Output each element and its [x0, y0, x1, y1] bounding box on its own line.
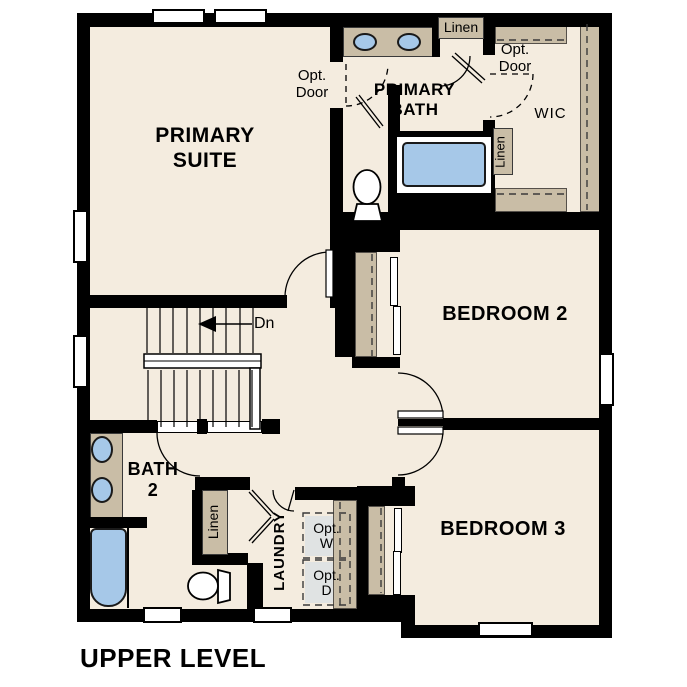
room-label-primary-bath: PRIMARY BATH — [352, 80, 477, 120]
hall-opening — [207, 421, 262, 433]
bath2-tub — [90, 528, 127, 607]
label-opt-washer: Opt. W — [303, 513, 350, 558]
wall-primary-suite-south — [90, 295, 287, 308]
wic-shelf-bottom — [495, 188, 567, 212]
opt-door-wic-line1: Opt. — [492, 41, 538, 58]
wall-closet3-south — [357, 595, 415, 622]
wall-ext-left — [77, 13, 90, 622]
opt-dryer-line2: D — [321, 583, 331, 598]
opt-dryer-line1: Opt. — [313, 568, 339, 583]
label-opt-door-wic: Opt. Door — [492, 41, 538, 76]
wall-closet2-south — [352, 357, 400, 368]
opt-door-wic-line2: Door — [492, 58, 538, 75]
page-title: UPPER LEVEL — [80, 643, 266, 674]
wall-bath2-north — [83, 420, 157, 433]
label-opt-door-primary: Opt. Door — [289, 67, 335, 102]
window-bottom-2 — [253, 607, 292, 623]
room-label-bedroom3: BEDROOM 3 — [413, 518, 593, 542]
label-linen-primary-bath: Linen — [438, 19, 484, 35]
wall-hall-sw-end — [262, 419, 280, 434]
bath2-tub-edge — [127, 528, 129, 608]
opt-washer-line2: W — [320, 536, 333, 551]
room-label-laundry: LAUNDRY — [271, 506, 291, 596]
room-label-primary-suite: PRIMARY SUITE — [95, 124, 315, 174]
wall-bath2-door-post — [197, 419, 207, 434]
primary-tub — [402, 142, 486, 187]
primary-bath-line2: BATH — [352, 100, 477, 120]
label-wic: WIC — [523, 105, 578, 122]
window-top-1 — [152, 9, 205, 24]
room-label-bedroom2: BEDROOM 2 — [415, 303, 595, 327]
bath2-door-opening — [157, 421, 198, 433]
window-left-1 — [73, 210, 88, 263]
primary-sink-left — [353, 33, 377, 51]
label-linen-bath2: Linen — [205, 490, 225, 554]
window-top-2 — [214, 9, 267, 24]
bedroom2-closet-door-1 — [390, 257, 398, 306]
label-stairs-dn: Dn — [254, 315, 284, 333]
wall-ext-right — [599, 13, 612, 638]
room-label-bath2: BATH 2 — [108, 459, 198, 501]
wall-hall-block — [335, 230, 400, 252]
window-bottom-1 — [143, 607, 182, 623]
primary-bath-line1: PRIMARY — [352, 80, 477, 100]
opt-washer-line1: Opt. — [313, 521, 339, 536]
wall-tub-divider — [82, 517, 147, 528]
wall-toilet2-east — [247, 563, 263, 609]
window-right-bedroom2 — [599, 353, 614, 406]
primary-suite-line1: PRIMARY — [95, 124, 315, 149]
bedroom3-closet-shelf — [368, 506, 385, 595]
wall-linen2-north — [195, 477, 250, 490]
wall-laundry-east — [357, 500, 368, 596]
window-bottom-bedroom3 — [478, 622, 533, 637]
primary-suite-line2: SUITE — [95, 149, 315, 174]
opt-door-primary-line1: Opt. — [289, 67, 335, 84]
bath2-line2: 2 — [108, 480, 198, 501]
wall-primary-suite-east-mid — [330, 108, 343, 212]
bedroom2-closet-door-2 — [393, 306, 401, 355]
label-opt-dryer: Opt. D — [303, 560, 350, 605]
bath2-line1: BATH — [108, 459, 198, 480]
floor-plan: PRIMARY SUITE PRIMARY BATH WIC BEDROOM 2… — [0, 0, 687, 687]
label-linen-wic: Linen — [494, 129, 514, 176]
wall-bath-south-band — [330, 212, 612, 230]
window-left-2 — [73, 335, 88, 388]
bedroom3-closet-door-1 — [394, 508, 402, 553]
bedroom3-closet-door-2 — [393, 551, 401, 595]
wall-hall-east — [335, 252, 355, 357]
bedroom2-closet-shelf — [355, 252, 377, 357]
primary-sink-right — [397, 33, 421, 51]
opt-door-primary-line2: Door — [289, 84, 335, 101]
wall-primary-suite-east-top — [330, 13, 343, 62]
wall-bedroom2-3-divider — [443, 418, 612, 430]
